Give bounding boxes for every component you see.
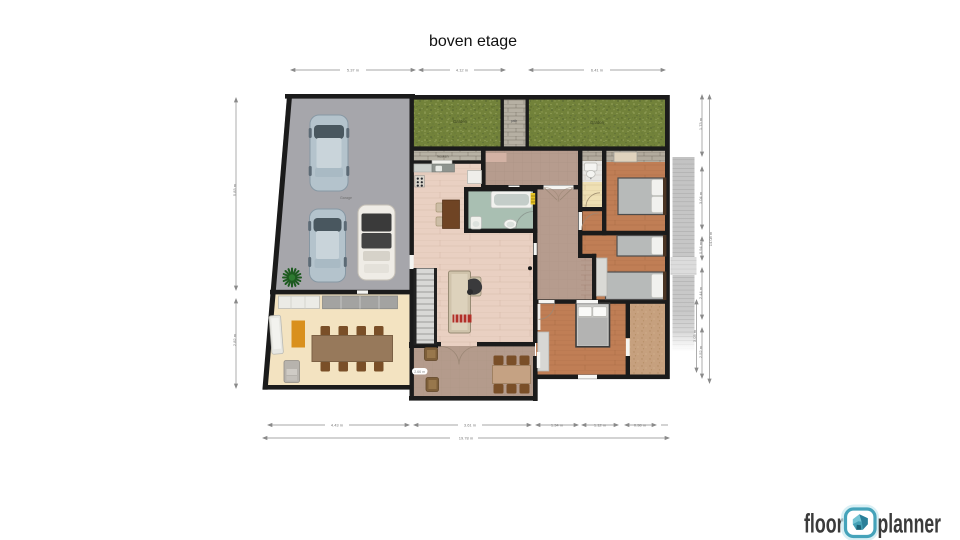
svg-text:14.08 m: 14.08 m [708,231,713,246]
svg-text:floor: floor [804,509,844,539]
svg-text:2.52 m: 2.52 m [698,345,703,358]
svg-text:6.41 m: 6.41 m [591,68,604,73]
svg-text:2.44 m: 2.44 m [698,286,703,299]
svg-text:4.12 m: 4.12 m [456,68,469,73]
svg-text:path: path [511,119,518,123]
svg-text:1.12 m: 1.12 m [594,423,607,428]
svg-text:4.43 m: 4.43 m [331,423,344,428]
svg-text:0.94 m: 0.94 m [698,241,703,254]
svg-text:3.61 m: 3.61 m [464,423,477,428]
svg-text:0.98 m: 0.98 m [634,423,647,428]
svg-text:boven etage: boven etage [429,33,517,50]
svg-text:Garden: Garden [590,120,605,125]
svg-text:3.04 m: 3.04 m [698,191,703,204]
svg-text:planner: planner [878,509,942,539]
svg-text:2.82 m: 2.82 m [232,333,237,346]
svg-text:2.66 m: 2.66 m [414,370,425,374]
svg-text:keuken: keuken [438,155,449,159]
svg-text:1.73 m: 1.73 m [698,117,703,130]
svg-text:Garage: Garage [340,196,352,200]
svg-text:3.03 m: 3.03 m [692,329,697,342]
svg-text:5.37 m: 5.37 m [347,68,360,73]
svg-text:Garden: Garden [453,119,468,124]
svg-text:1.34 m: 1.34 m [551,423,564,428]
svg-text:19.78 m: 19.78 m [459,436,474,441]
svg-text:5.83 m: 5.83 m [232,183,237,196]
